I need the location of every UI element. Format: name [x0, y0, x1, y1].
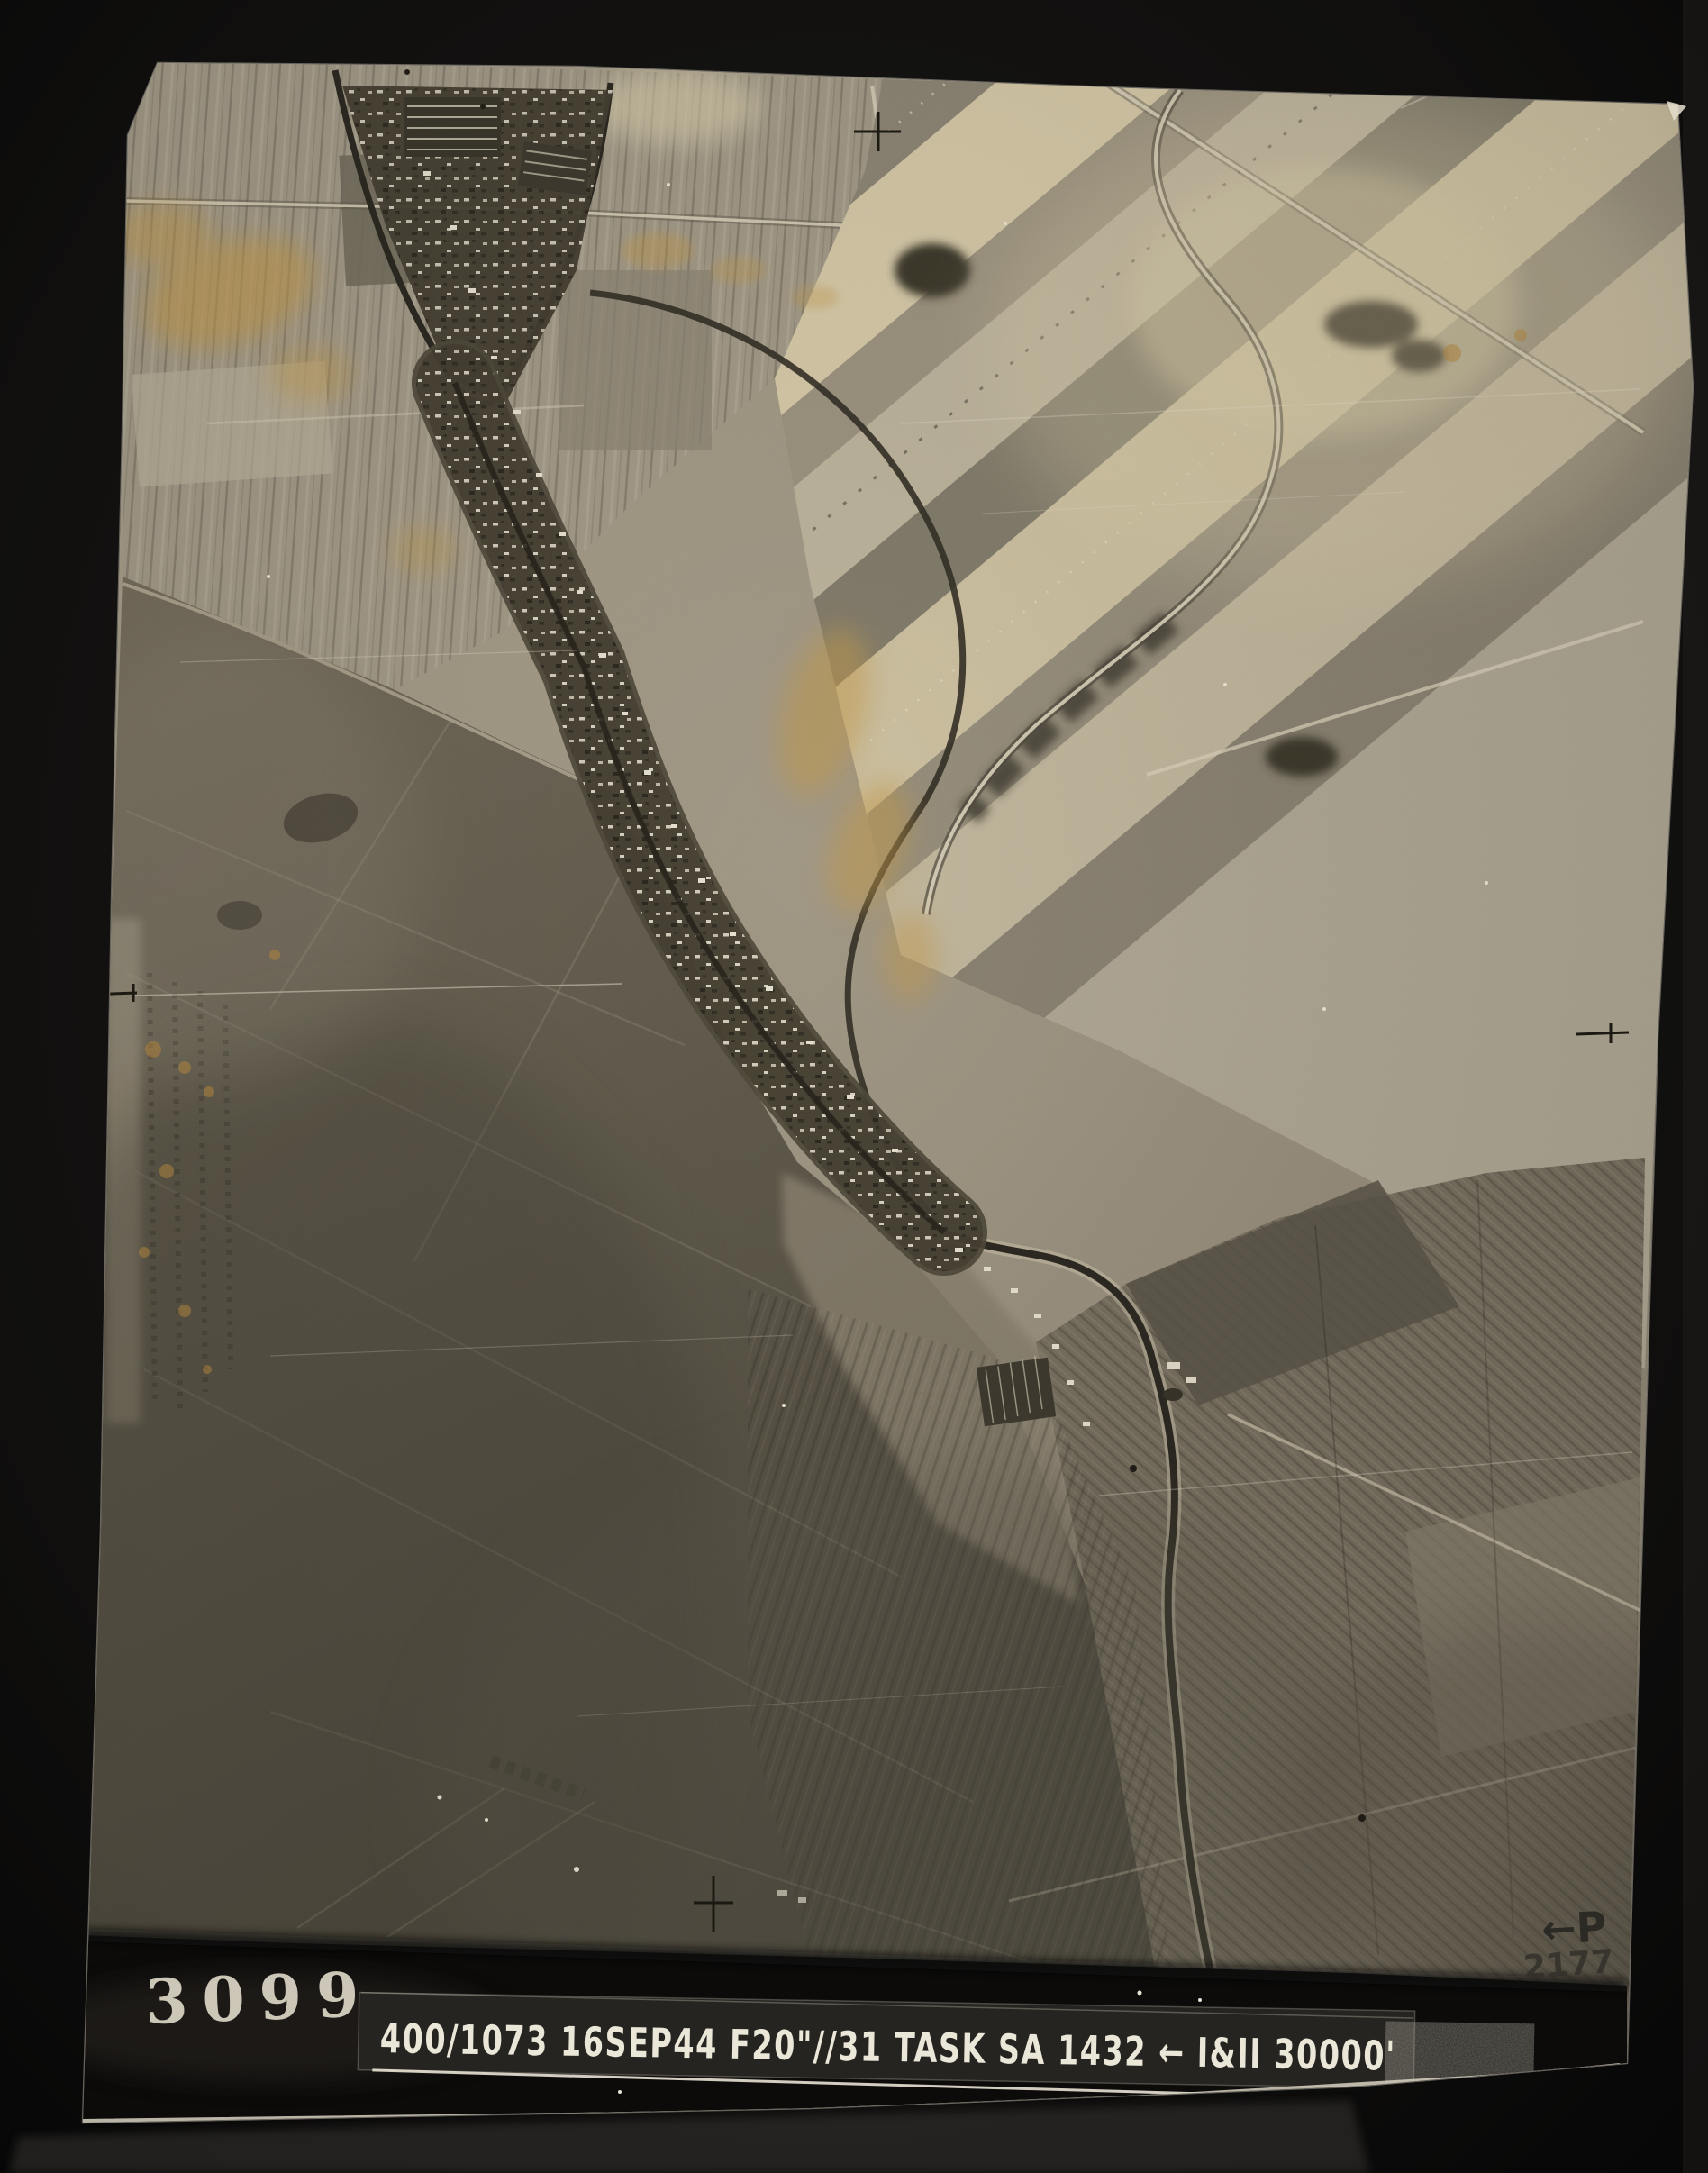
aerial-imagery: 3099 400/1073 16SEP44 F20"//31 TASK SA 1… [0, 0, 1708, 2144]
pencil-number-note: 2177 [1522, 1943, 1615, 1987]
aerial-photo-print: 3099 400/1073 16SEP44 F20"//31 TASK SA 1… [0, 0, 1708, 2144]
stamp-number-text: 3099 [144, 1959, 375, 2039]
photo-album-page: 3099 400/1073 16SEP44 F20"//31 TASK SA 1… [0, 0, 1708, 2173]
film-grain [72, 36, 1703, 2135]
